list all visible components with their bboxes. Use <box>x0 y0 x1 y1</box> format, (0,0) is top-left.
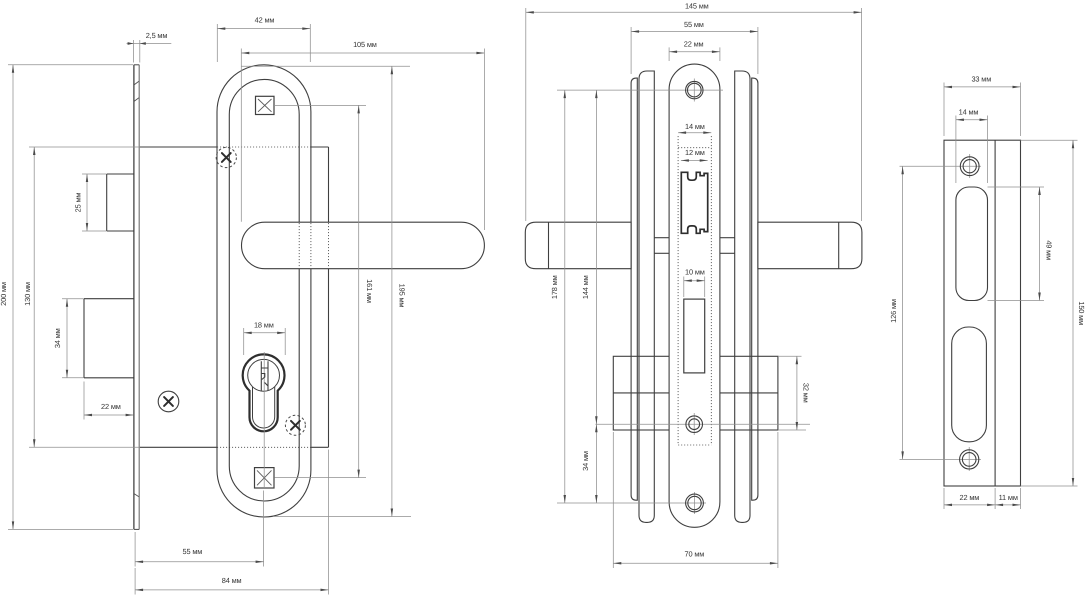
svg-text:14 мм: 14 мм <box>959 107 979 116</box>
svg-text:25 мм: 25 мм <box>74 193 83 213</box>
svg-text:32 мм: 32 мм <box>801 383 810 403</box>
svg-text:178 мм: 178 мм <box>550 275 559 299</box>
svg-text:195 мм: 195 мм <box>398 284 407 308</box>
svg-text:34 мм: 34 мм <box>53 328 62 348</box>
svg-text:105 мм: 105 мм <box>353 40 377 49</box>
svg-text:18 мм: 18 мм <box>254 320 274 329</box>
svg-text:55 мм: 55 мм <box>684 20 704 29</box>
svg-text:22 мм: 22 мм <box>684 39 704 48</box>
svg-text:145 мм: 145 мм <box>685 2 709 11</box>
svg-text:33 мм: 33 мм <box>971 75 991 84</box>
svg-text:2,5 мм: 2,5 мм <box>146 31 168 40</box>
svg-text:150 мм: 150 мм <box>1077 301 1085 325</box>
svg-text:34 мм: 34 мм <box>581 451 590 471</box>
svg-text:22 мм: 22 мм <box>960 493 980 502</box>
svg-text:130 мм: 130 мм <box>23 282 32 306</box>
svg-text:22 мм: 22 мм <box>101 402 121 411</box>
svg-text:14 мм: 14 мм <box>685 122 705 131</box>
svg-text:126 мм: 126 мм <box>889 299 898 323</box>
svg-text:55 мм: 55 мм <box>183 547 203 556</box>
svg-text:10 мм: 10 мм <box>685 268 705 277</box>
svg-text:144 мм: 144 мм <box>581 275 590 299</box>
svg-text:11 мм: 11 мм <box>999 493 1018 502</box>
svg-text:84 мм: 84 мм <box>222 576 242 585</box>
svg-text:70 мм: 70 мм <box>685 550 705 559</box>
svg-text:161 мм: 161 мм <box>365 279 374 303</box>
svg-text:49 мм: 49 мм <box>1045 240 1054 260</box>
svg-text:12 мм: 12 мм <box>685 148 705 157</box>
svg-text:42 мм: 42 мм <box>255 16 275 25</box>
svg-text:200 мм: 200 мм <box>0 282 8 306</box>
